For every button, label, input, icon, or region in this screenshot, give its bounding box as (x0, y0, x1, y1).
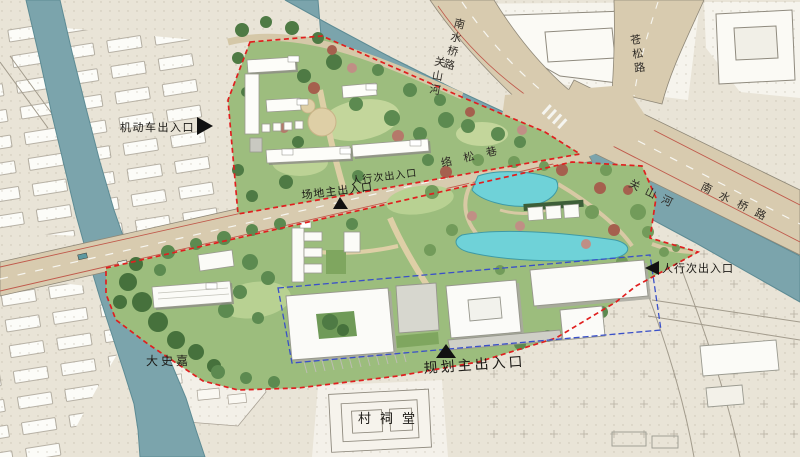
place-label-dashijia: 大史嘉 (146, 354, 191, 368)
place-label-village-hall: 村祠堂 (358, 411, 424, 426)
label-vehicle-entrance: 机动车出入口 (120, 120, 195, 134)
site-plan-drawing: 机动车出入口 人行次出入口 场地主出入口 人行次出入口 规划主出入口 大史嘉 村… (0, 0, 800, 457)
master-plan-canvas: 机动车出入口 人行次出入口 场地主出入口 人行次出入口 规划主出入口 大史嘉 村… (0, 0, 800, 457)
label-pedestrian-secondary-east: 人行次出入口 (662, 261, 734, 275)
